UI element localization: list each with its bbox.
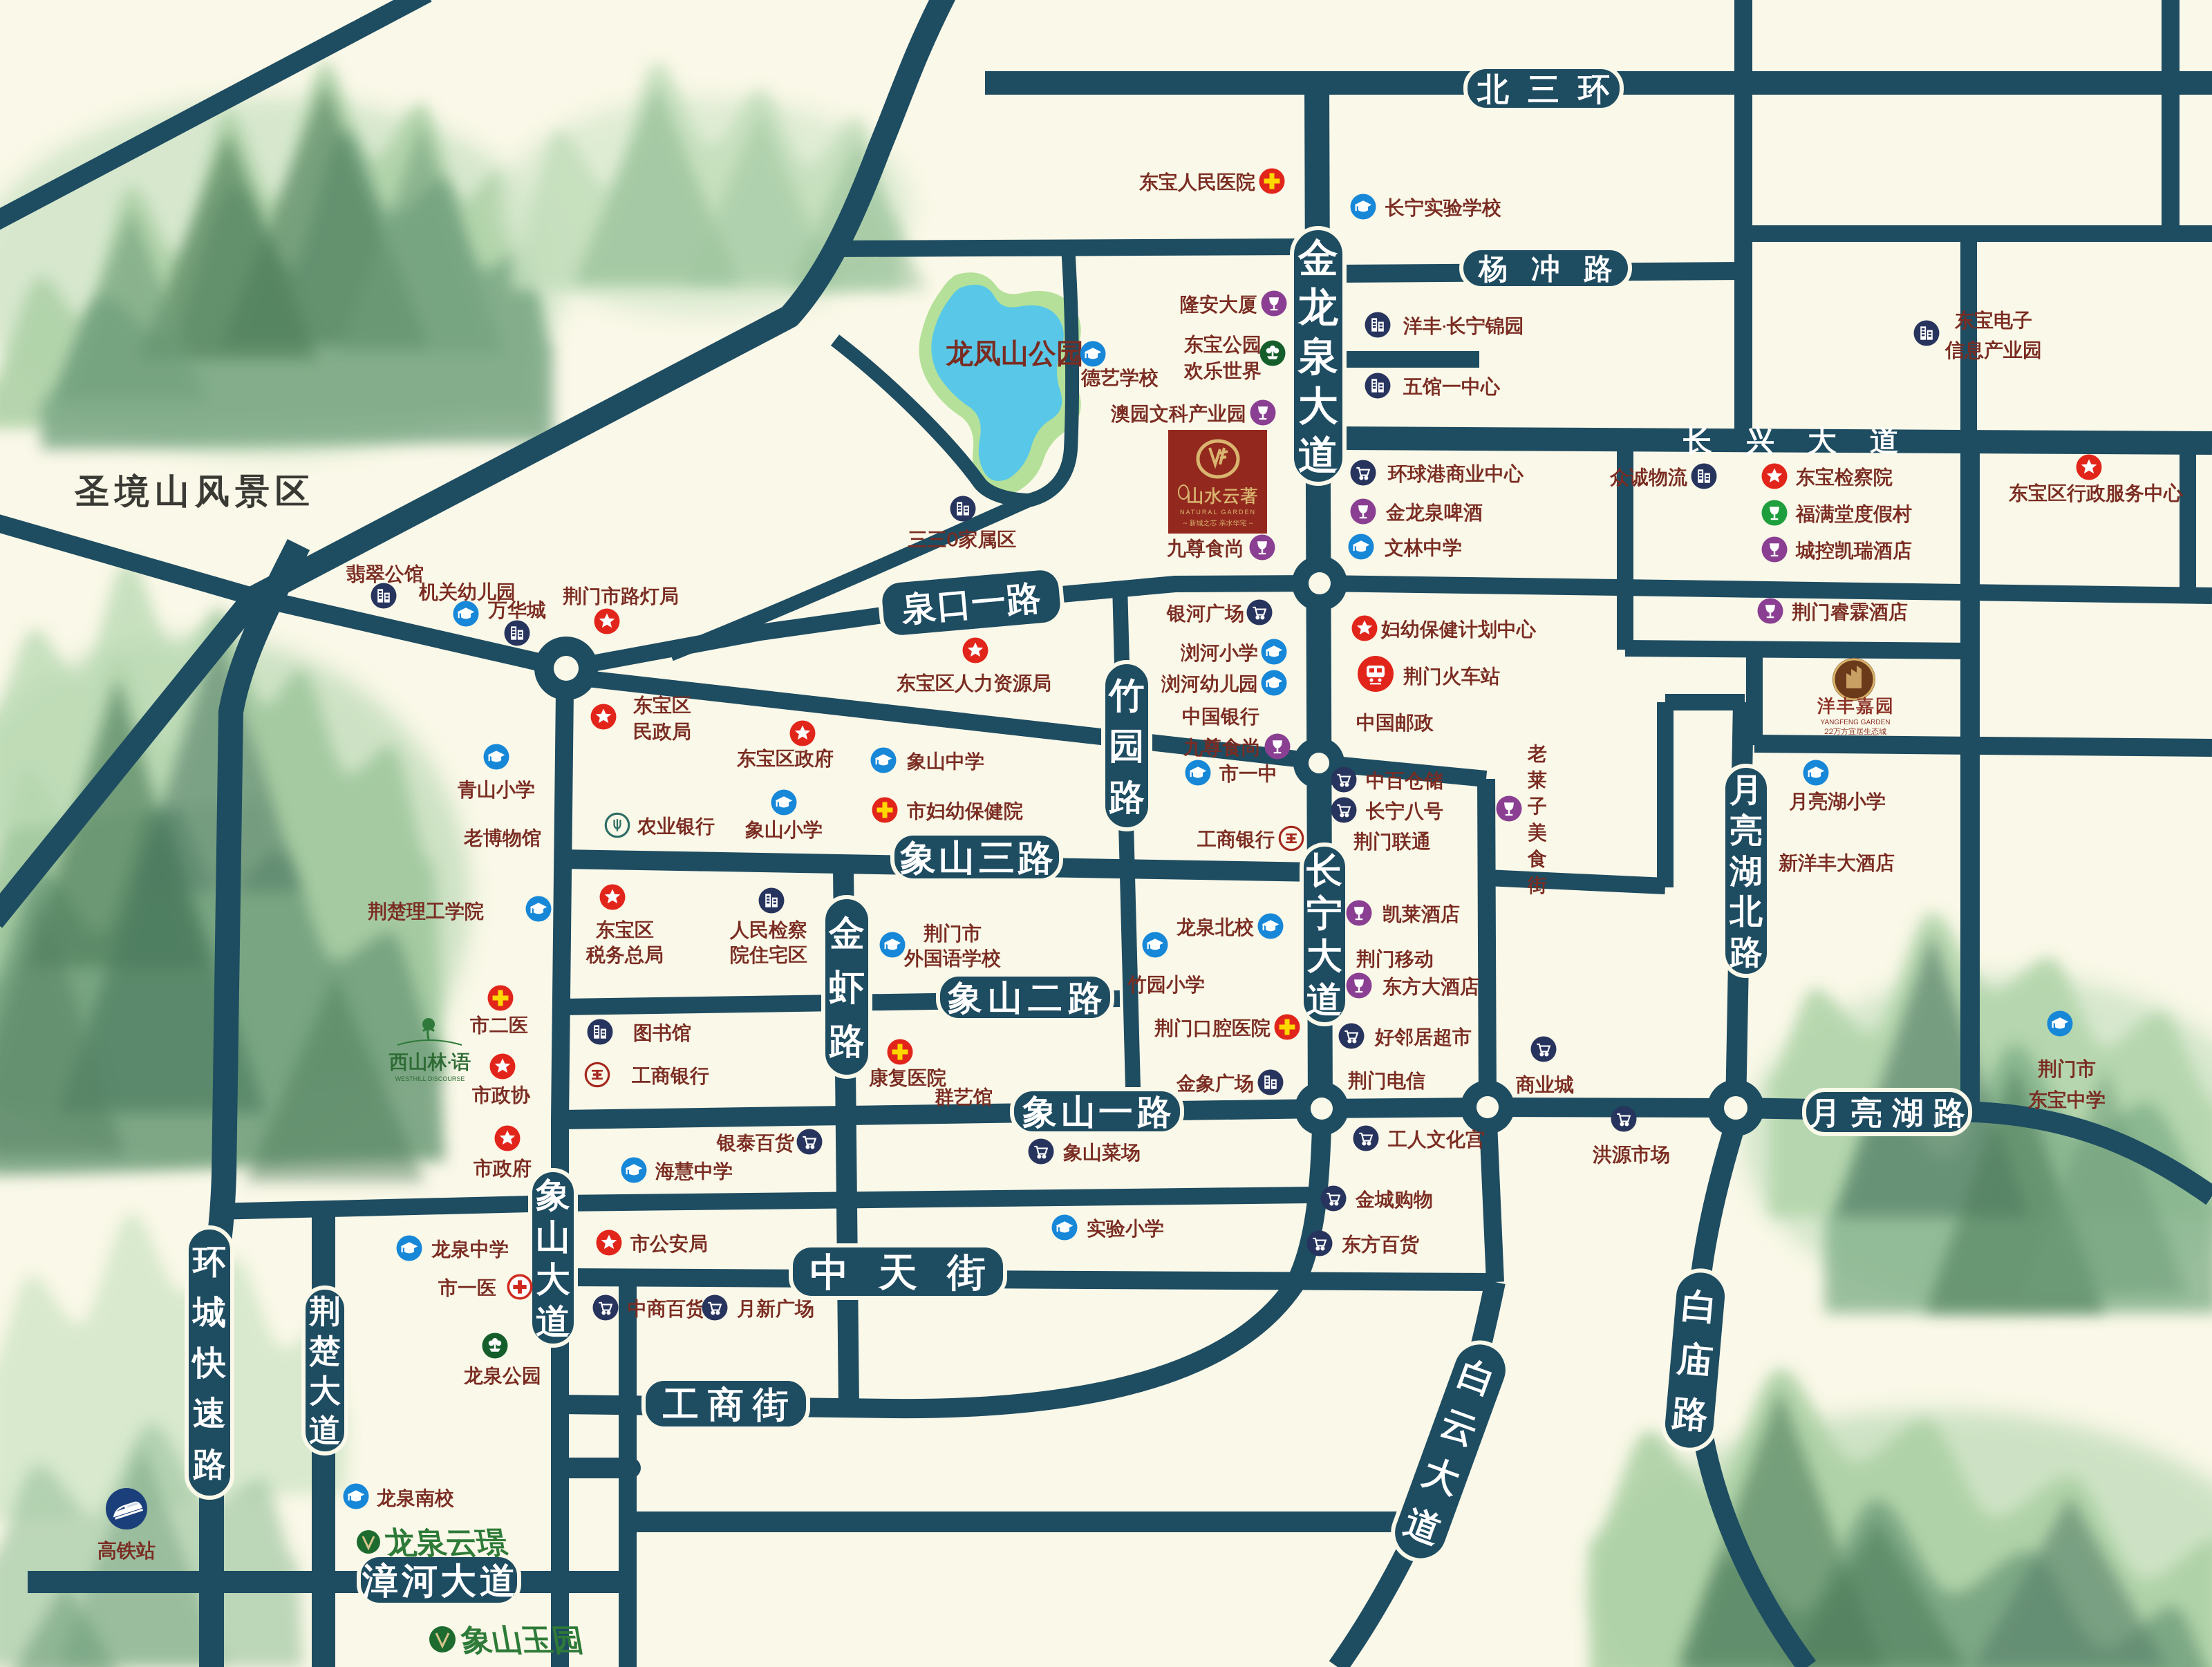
svg-text:YANGFENG GARDEN: YANGFENG GARDEN xyxy=(1821,719,1891,726)
svg-text:NATURAL GARDEN: NATURAL GARDEN xyxy=(1180,509,1256,516)
svg-text:WESTHILL DISCOURSE: WESTHILL DISCOURSE xyxy=(395,1075,465,1082)
